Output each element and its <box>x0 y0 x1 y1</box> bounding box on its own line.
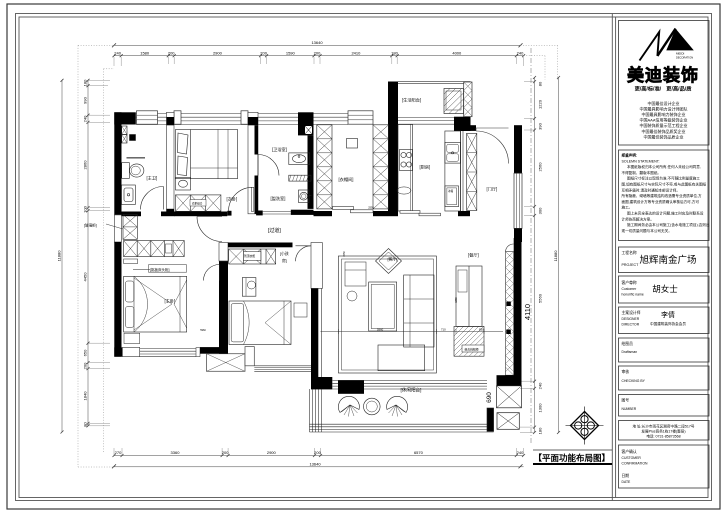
svg-text:[生活阳台]: [生活阳台] <box>402 97 421 104</box>
svg-text:5960: 5960 <box>200 329 206 332</box>
svg-text:690: 690 <box>486 392 493 403</box>
svg-text:胡女士: 胡女士 <box>652 284 678 294</box>
svg-text:240: 240 <box>83 115 88 122</box>
svg-text:主案设计师: 主案设计师 <box>622 310 641 315</box>
svg-text:200: 200 <box>314 50 321 55</box>
svg-text:[主卧]: [主卧] <box>165 298 176 305</box>
svg-text:[小孩: [小孩 <box>280 251 289 256</box>
svg-text:更/高/标/准/ 更/高/品/质: 更/高/标/准/ 更/高/品/质 <box>635 85 693 93</box>
svg-text:本图纸版权归本公司所有,任何人未经公司同意,: 本图纸版权归本公司所有,任何人未经公司同意, <box>627 164 701 169</box>
svg-text:房]: 房] <box>282 258 287 263</box>
svg-text:1550: 1550 <box>343 251 346 257</box>
svg-text:中国装饰质量示范工程企业: 中国装饰质量示范工程企业 <box>640 122 688 128</box>
svg-text:240: 240 <box>114 50 121 55</box>
svg-text:中国最具影响力设计师团队: 中国最具影响力设计师团队 <box>640 106 688 112</box>
svg-text:[过道]: [过道] <box>268 227 281 234</box>
svg-text:200: 200 <box>83 362 88 369</box>
svg-text:中国AAA信用等级装饰企业: 中国AAA信用等级装饰企业 <box>639 117 687 123</box>
svg-text:4000: 4000 <box>452 50 462 55</box>
svg-text:80: 80 <box>538 81 543 86</box>
svg-text:PROJECT: PROJECT <box>622 263 640 267</box>
svg-text:计师协商解决方案。: 计师协商解决方案。 <box>622 216 654 221</box>
svg-text:中国最佳设计企业: 中国最佳设计企业 <box>648 100 680 106</box>
svg-text:现一切质量问题与本公司无关。: 现一切质量问题与本公司无关。 <box>622 228 672 233</box>
svg-text:互相矛盾时,请及时通知本部设计师。: 互相矛盾时,请及时通知本部设计师。 <box>622 187 681 192</box>
svg-text:施工。: 施工。 <box>622 205 633 210</box>
svg-text:11880: 11880 <box>57 250 62 262</box>
svg-text:[玻璃柜]: [玻璃柜] <box>84 223 97 228</box>
svg-text:5560: 5560 <box>538 293 543 303</box>
svg-text:650: 650 <box>83 349 88 356</box>
svg-text:CHECKING BY: CHECKING BY <box>622 379 646 383</box>
svg-text:240: 240 <box>538 382 543 389</box>
svg-text:240: 240 <box>517 450 524 455</box>
svg-text:270: 270 <box>115 450 122 455</box>
svg-text:6570: 6570 <box>414 450 424 455</box>
svg-text:200: 200 <box>314 450 321 455</box>
svg-text:郑重声明:: 郑重声明: <box>621 153 638 158</box>
svg-text:美迪装饰: 美迪装饰 <box>627 65 699 85</box>
svg-text:[休闲阳台]: [休闲阳台] <box>401 387 422 394</box>
svg-text:所有隐蔽、砌墙等建筑结构改造需专业资质单位,方: 所有隐蔽、砌墙等建筑结构改造需专业资质单位,方 <box>622 193 702 198</box>
svg-text:80: 80 <box>83 422 88 427</box>
svg-text:390: 390 <box>538 122 543 129</box>
svg-text:DESIGNER: DESIGNER <box>622 317 640 321</box>
svg-text:[餐厅]: [餐厅] <box>468 252 479 259</box>
svg-text:1880: 1880 <box>455 297 458 303</box>
svg-text:710: 710 <box>441 328 446 332</box>
svg-text:honorific name: honorific name <box>622 293 644 297</box>
svg-text:4110: 4110 <box>523 304 532 320</box>
svg-text:面图,建筑设计方等专业资质确认审核后方可,方可: 面图,建筑设计方等专业资质确认审核后方可,方可 <box>622 199 700 204</box>
svg-text:地 址:长沙市雨花区湘府中路二段517号: 地 址:长沙市雨花区湘府中路二段517号 <box>633 424 695 429</box>
svg-text:施工期间务必由本公司施工(含水电施工项目),否则出: 施工期间务必由本公司施工(含水电施工项目),否则出 <box>627 222 710 227</box>
svg-text:DIRECTOR: DIRECTOR <box>622 323 640 327</box>
svg-text:CUSTOMER: CUSTOMER <box>622 456 642 460</box>
svg-text:3360: 3360 <box>171 450 181 455</box>
svg-text:180: 180 <box>83 79 88 86</box>
svg-text:Draftsman: Draftsman <box>622 350 638 354</box>
svg-text:200: 200 <box>222 450 229 455</box>
svg-text:180: 180 <box>538 427 543 434</box>
svg-text:180: 180 <box>391 50 398 55</box>
svg-text:发展Plus商务1栋17楼(整层): 发展Plus商务1栋17楼(整层) <box>641 429 685 434</box>
svg-text:2410: 2410 <box>351 50 361 55</box>
svg-text:200: 200 <box>260 50 267 55</box>
svg-text:200: 200 <box>168 50 175 55</box>
svg-text:图纸尺寸标注以现场为准,不可随比例量度施工: 图纸尺寸标注以现场为准,不可随比例量度施工 <box>627 176 700 181</box>
svg-text:中国最佳装饰品质奖企业: 中国最佳装饰品质奖企业 <box>642 128 686 134</box>
svg-text:组合鞋帽柜: 组合鞋帽柜 <box>465 348 479 352</box>
svg-text:DATE: DATE <box>622 480 632 484</box>
svg-text:审核: 审核 <box>622 369 630 374</box>
svg-text:13640: 13640 <box>309 461 321 466</box>
svg-text:4450: 4450 <box>83 272 88 282</box>
svg-text:990: 990 <box>83 96 88 103</box>
svg-text:830: 830 <box>479 328 484 332</box>
svg-text:2900: 2900 <box>213 50 223 55</box>
svg-text:1590: 1590 <box>286 50 296 55</box>
svg-text:冰箱: 冰箱 <box>448 189 454 193</box>
svg-text:旭辉南金广场: 旭辉南金广场 <box>639 254 696 266</box>
svg-text:客户尊称: 客户尊称 <box>622 280 637 285</box>
svg-text:240: 240 <box>517 50 524 55</box>
svg-text:[衣帽间]: [衣帽间] <box>339 176 354 183</box>
svg-text:5960: 5960 <box>377 328 384 332</box>
svg-text:图,如有图纸尺寸与实际尺寸不符,或与此图纸有关图纸: 图,如有图纸尺寸与实际尺寸不符,或与此图纸有关图纸 <box>622 182 707 187</box>
svg-text:中国最佳装饰品质企业: 中国最佳装饰品质企业 <box>644 133 684 139</box>
svg-text:到顶衣柜: 到顶衣柜 <box>244 254 255 258</box>
svg-text:SOLEMN STATEMENT:: SOLEMN STATEMENT: <box>622 159 660 163</box>
svg-text:11880: 11880 <box>553 250 558 262</box>
svg-text:NUMBER: NUMBER <box>622 407 637 411</box>
svg-text:[主卫]: [主卫] <box>147 175 158 181</box>
svg-text:中国建筑装饰协会会员: 中国建筑装饰协会会员 <box>650 321 686 326</box>
svg-text:[卫浴室]: [卫浴室] <box>272 146 287 153</box>
svg-text:2860: 2860 <box>83 160 88 170</box>
svg-text:[挑板床头柜]: [挑板床头柜] <box>150 267 169 272</box>
svg-text:1220: 1220 <box>538 99 543 109</box>
svg-text:[门厅]: [门厅] <box>487 186 498 193</box>
svg-text:不得复制、翻版本图纸。: 不得复制、翻版本图纸。 <box>622 170 662 175</box>
svg-text:图上未完全表达的设计问题,施工时应及时联系设: 图上未完全表达的设计问题,施工时应及时联系设 <box>627 211 704 216</box>
svg-text:客户确认: 客户确认 <box>622 449 637 454</box>
svg-text:[次卧]: [次卧] <box>227 196 238 203</box>
svg-text:日期: 日期 <box>622 473 630 478</box>
svg-text:100: 100 <box>83 205 88 212</box>
svg-text:1840: 1840 <box>83 391 88 401</box>
svg-text:Customer: Customer <box>622 287 638 291</box>
svg-text:2550: 2550 <box>368 207 374 210</box>
svg-text:2900: 2900 <box>267 450 277 455</box>
svg-text:MEIDI: MEIDI <box>676 52 685 56</box>
svg-text:2560: 2560 <box>538 162 543 172</box>
svg-text:[盥洗室]: [盥洗室] <box>271 195 286 202</box>
svg-text:[厨房]: [厨房] <box>420 164 431 171</box>
svg-text:李倩: 李倩 <box>661 310 675 319</box>
svg-text:1580: 1580 <box>140 50 150 55</box>
svg-text:[客厅]: [客厅] <box>388 257 398 262</box>
svg-text:CONFIRMATION: CONFIRMATION <box>622 462 648 466</box>
svg-text:电话: 0731-85873568: 电话: 0731-85873568 <box>646 434 680 439</box>
svg-text:DECORATION: DECORATION <box>676 56 693 60</box>
svg-text:1300: 1300 <box>538 403 543 413</box>
svg-text:中国最具影响力装饰企业: 中国最具影响力装饰企业 <box>642 111 686 117</box>
svg-text:【平面功能布局图】: 【平面功能布局图】 <box>534 453 611 463</box>
svg-text:13640: 13640 <box>311 40 323 45</box>
svg-text:300: 300 <box>538 207 543 214</box>
svg-text:衣柜组合: 衣柜组合 <box>192 202 203 206</box>
svg-text:绘图员: 绘图员 <box>622 341 634 346</box>
svg-text:工程名称: 工程名称 <box>622 250 637 255</box>
svg-text:图号: 图号 <box>622 398 630 403</box>
